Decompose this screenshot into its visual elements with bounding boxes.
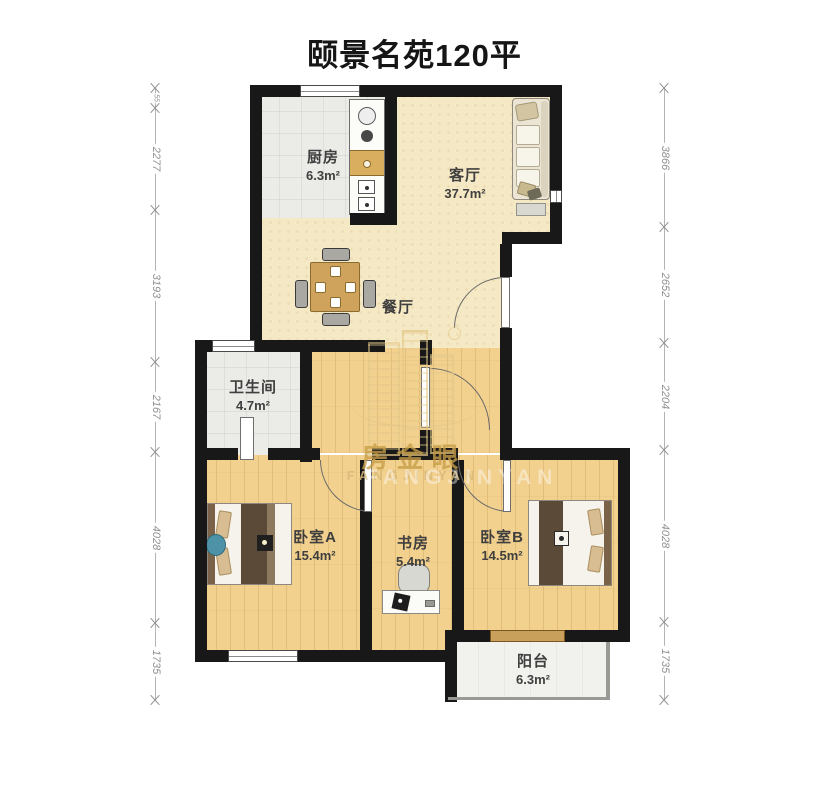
desk <box>382 590 440 614</box>
wall <box>550 97 562 190</box>
bed-b-accent-pillow <box>554 531 569 546</box>
balcony-rail-bottom <box>448 697 608 700</box>
dimension-tick <box>149 617 161 629</box>
wall <box>618 448 630 642</box>
left-dimension-value: 55 <box>152 93 159 103</box>
wall <box>502 232 562 244</box>
dining-chair <box>322 248 350 261</box>
bedside-decor <box>206 534 226 556</box>
plan-title: 颐景名苑120平 <box>0 30 829 75</box>
wall <box>385 97 397 225</box>
sofa-cushion <box>516 147 540 167</box>
dimension-tick <box>149 102 161 114</box>
stove-icon <box>358 180 375 194</box>
dimension-tick <box>149 204 161 216</box>
wall <box>510 448 630 460</box>
registered-mark-icon <box>448 327 461 340</box>
left-dimension-value: 4028 <box>149 522 163 552</box>
living-label: 客厅37.7m² <box>444 164 485 201</box>
dimension-tick <box>658 694 670 706</box>
dining-chair <box>322 313 350 326</box>
study-label: 书房5.4m² <box>396 532 430 569</box>
pot-icon <box>361 130 373 142</box>
wall <box>195 340 207 662</box>
dimension-tick <box>658 82 670 94</box>
right-dimension-value: 4028 <box>658 521 672 551</box>
bed-a-accent-pillow <box>257 535 273 551</box>
dimension-tick <box>149 694 161 706</box>
sofa-chaise-pillow <box>515 101 540 122</box>
dining-label: 餐厅 <box>382 296 414 317</box>
right-dimension-value: 1735 <box>658 646 672 676</box>
bed-b-pillow <box>587 545 604 573</box>
dimension-tick <box>658 337 670 349</box>
balcony-sliding-door <box>490 630 565 642</box>
wall <box>500 328 512 460</box>
floor-plan-page: { "title": "颐景名苑120平", "rooms": { "kitch… <box>0 0 829 803</box>
dining-chair <box>295 280 308 308</box>
wall <box>300 352 312 462</box>
counter-gold-section <box>350 150 384 176</box>
dimension-tick <box>658 221 670 233</box>
dimension-tick <box>658 616 670 628</box>
balcony-label: 阳台6.3m² <box>516 650 550 687</box>
kitchen-counter <box>349 99 385 215</box>
bathroom-label: 卫生间4.7m² <box>229 376 277 413</box>
wall <box>360 85 562 97</box>
bathroom-door-leaf <box>240 417 254 460</box>
left-dimension-value: 3193 <box>149 271 163 301</box>
right-dimension-value: 2652 <box>658 270 672 300</box>
wall <box>250 97 262 352</box>
wall <box>550 203 562 232</box>
wall <box>350 213 397 225</box>
sofa-pillow-dark <box>527 187 542 201</box>
sink-icon <box>358 107 376 125</box>
desk-item <box>425 600 435 607</box>
bedroom-a-window <box>228 650 298 662</box>
balcony-rail-right <box>606 642 610 700</box>
kitchen-label: 厨房6.3m² <box>306 146 340 183</box>
kitchen-window <box>300 85 360 97</box>
plate-icon <box>330 266 341 277</box>
plate-icon <box>345 282 356 293</box>
dimension-tick <box>149 446 161 458</box>
right-dimension-value: 2204 <box>658 381 672 411</box>
bedroom-b-label: 卧室B14.5m² <box>480 526 524 563</box>
dimension-tick <box>658 444 670 456</box>
dimension-tick <box>149 356 161 368</box>
plate-icon <box>330 297 341 308</box>
sofa <box>512 98 550 200</box>
bathroom-window <box>212 340 255 352</box>
bed-b <box>528 500 612 586</box>
dining-chair <box>363 280 376 308</box>
dining-table <box>310 262 360 312</box>
plate-icon <box>315 282 326 293</box>
wall <box>298 650 457 662</box>
wall <box>268 448 320 460</box>
monitor-icon <box>392 593 411 612</box>
wall <box>195 448 238 460</box>
watermark-tiled-text: FANGJINYAN <box>365 466 558 490</box>
bed-b-pillow <box>587 508 604 536</box>
stove-icon-2 <box>358 197 375 211</box>
left-dimension-value: 2167 <box>149 392 163 422</box>
sofa-cushion <box>516 125 540 145</box>
sofa-back <box>541 101 548 197</box>
wall <box>500 244 512 277</box>
left-dimension-value: 1735 <box>149 646 163 676</box>
right-dimension-value: 3866 <box>658 142 672 172</box>
sofa-side-table <box>516 203 546 216</box>
wall <box>195 650 228 662</box>
entry-door-leaf <box>501 277 510 328</box>
bed-b-headboard <box>604 501 611 585</box>
living-wall-opening <box>550 190 562 203</box>
wall <box>250 85 300 97</box>
left-dimension-value: 2277 <box>149 144 163 174</box>
bedroom-a-label: 卧室A15.4m² <box>293 526 337 563</box>
